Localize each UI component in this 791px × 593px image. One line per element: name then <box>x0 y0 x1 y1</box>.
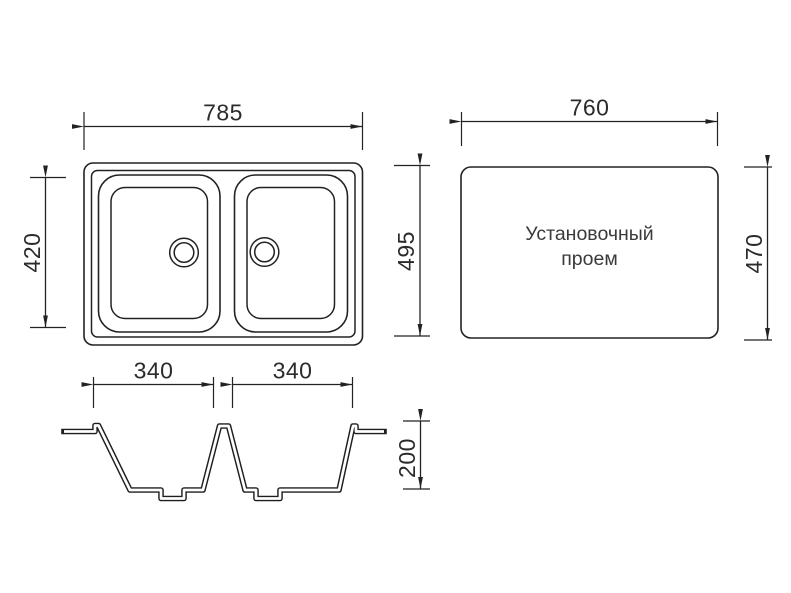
section-profile-outline <box>64 426 384 499</box>
technical-drawing-canvas: 785 420 495 Установочный проем 760 470 <box>0 0 791 593</box>
sink-dimension-drawing: 785 420 495 Установочный проем 760 470 <box>0 0 791 593</box>
dim-bowl-left-width: 340 <box>94 358 214 409</box>
dim-bowl-depth: 200 <box>394 421 430 489</box>
dim-bowl-zone-height: 420 <box>19 178 66 328</box>
sink-rim-inner-edge <box>92 171 356 338</box>
drain-right-inner-circle <box>255 242 275 262</box>
dim-sink-overall-width: 785 <box>84 100 363 151</box>
bowl-right-outer-edge <box>235 175 348 332</box>
dim-sink-overall-depth-label: 495 <box>393 231 419 271</box>
dim-opening-width: 760 <box>462 95 718 147</box>
install-opening-label-line2: проем <box>561 248 618 270</box>
dim-opening-height: 470 <box>741 167 772 340</box>
sink-outer-edge <box>84 163 363 345</box>
drain-left-inner-circle <box>174 243 194 263</box>
dim-bowl-left-width-label: 340 <box>134 358 174 384</box>
dim-sink-overall-width-label: 785 <box>203 100 243 126</box>
bowl-left-inner-edge <box>111 188 208 319</box>
sink-section-view <box>64 426 384 499</box>
bowl-right-inner-edge <box>247 188 335 319</box>
dim-opening-height-label: 470 <box>741 234 767 274</box>
dim-bowl-depth-label: 200 <box>394 438 420 478</box>
dim-bowl-right-width-label: 340 <box>273 358 313 384</box>
install-opening-label-line1: Установочный <box>525 223 653 245</box>
sink-top-view <box>84 163 363 345</box>
dim-opening-width-label: 760 <box>570 95 610 121</box>
install-opening-view: Установочный проем <box>461 167 718 338</box>
dim-sink-overall-depth: 495 <box>393 166 430 337</box>
dim-bowl-zone-height-label: 420 <box>19 233 45 273</box>
dim-bowl-right-width: 340 <box>233 358 353 409</box>
bowl-left-outer-edge <box>99 175 221 332</box>
